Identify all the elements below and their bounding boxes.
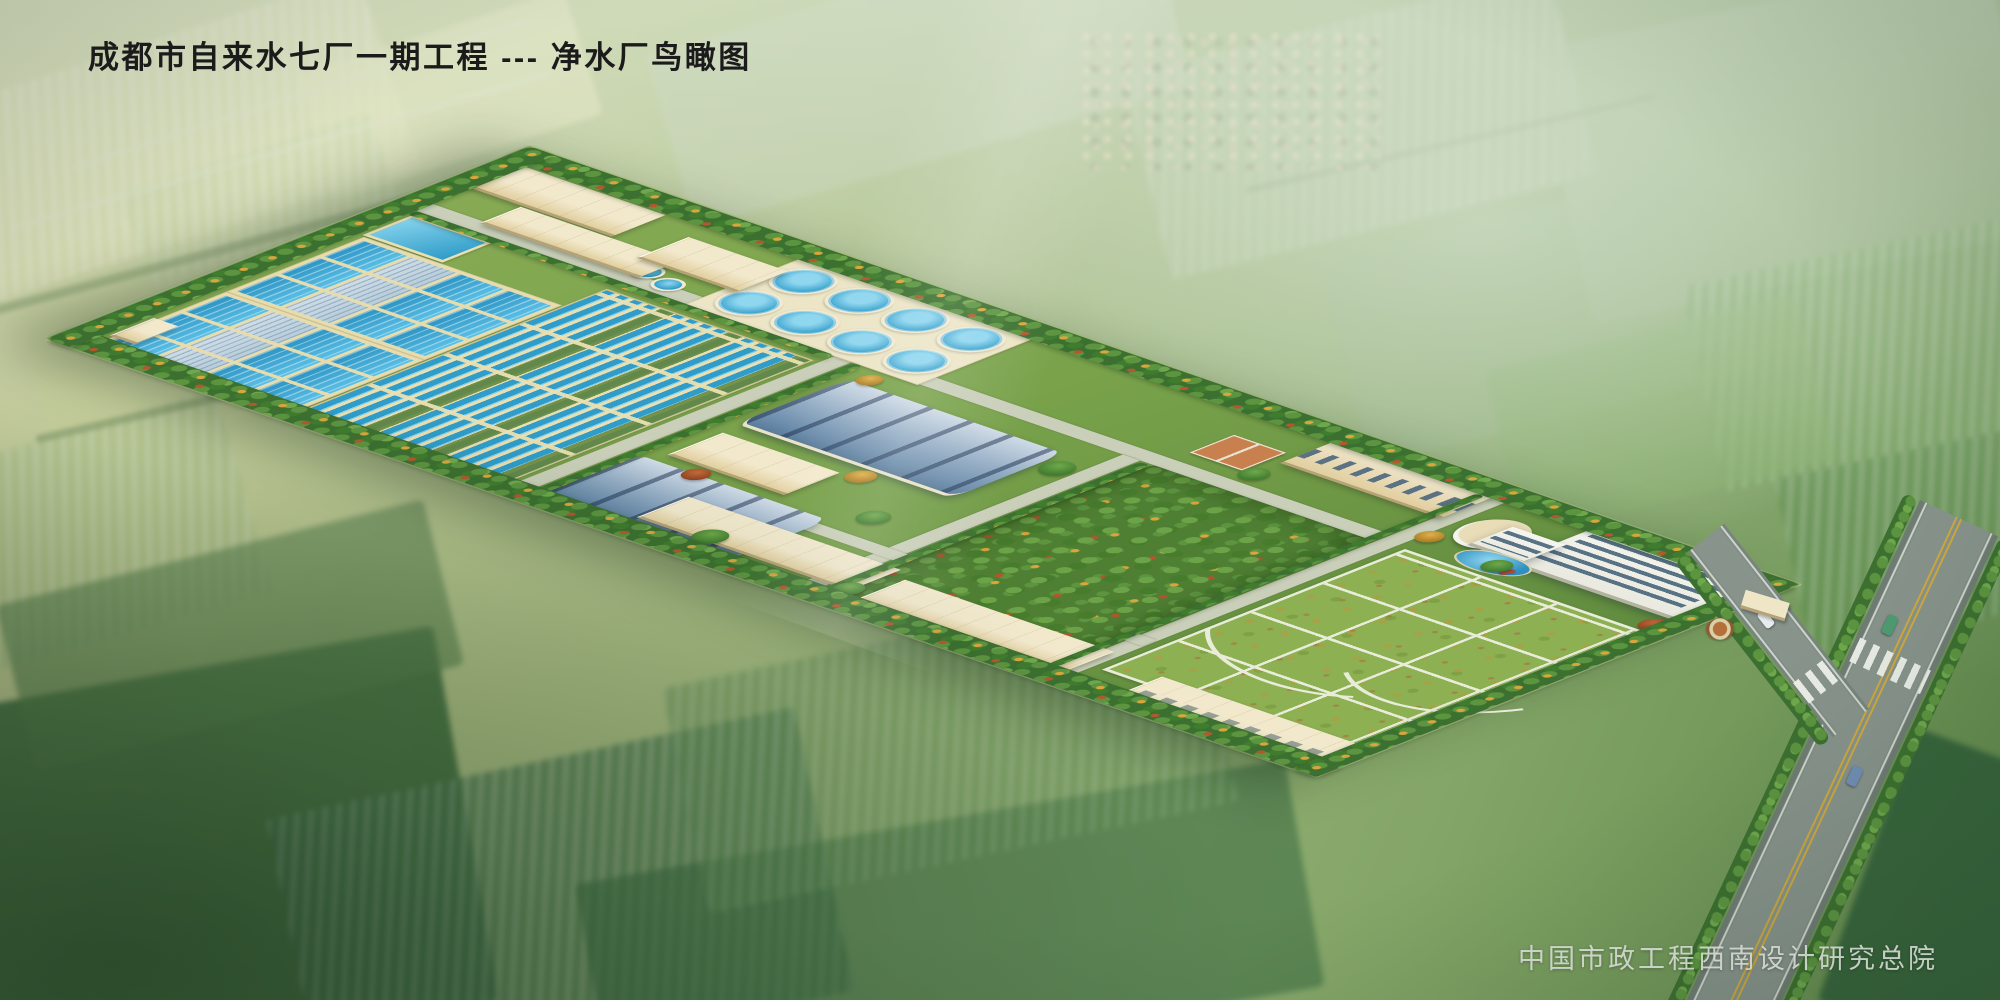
tree — [848, 508, 898, 527]
basketball-court — [1189, 435, 1286, 471]
crosswalk — [1850, 638, 1931, 694]
car-blue — [1845, 765, 1863, 788]
car-green — [1881, 614, 1899, 637]
page-title: 成都市自来水七厂一期工程 --- 净水厂鸟瞰图 — [88, 32, 752, 77]
crosswalk — [1793, 657, 1842, 703]
village-cluster — [1080, 30, 1380, 170]
studio-credit: 中国市政工程西南设计研究总院 — [1518, 937, 1938, 976]
stage: 成都市自来水七厂一期工程 --- 净水厂鸟瞰图 中国市政工程西南设计研究总院 — [0, 0, 2000, 1000]
gate-plaza-circle — [1706, 618, 1734, 640]
